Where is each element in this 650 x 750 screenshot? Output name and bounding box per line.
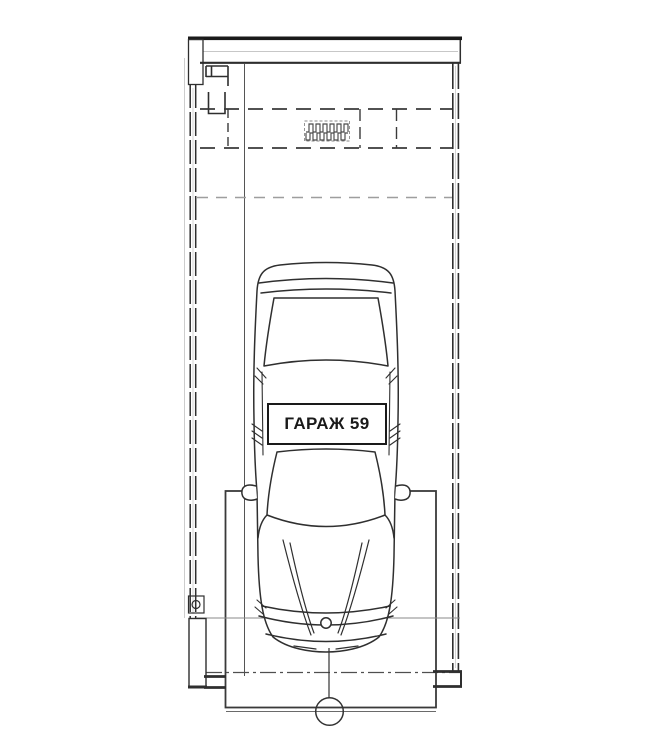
heater-coil-symbol	[305, 121, 350, 141]
car-top-view	[242, 263, 410, 653]
floor-plan-page: ГАРАЖ 59	[0, 0, 650, 750]
car-left-mirror	[242, 485, 257, 500]
car-emblem-circle	[321, 618, 331, 628]
left-step	[204, 677, 226, 688]
axis-marker	[316, 648, 344, 725]
right-step	[433, 672, 462, 687]
floor-plan-drawing	[0, 0, 650, 750]
right-boundary-wall	[453, 63, 459, 671]
top-wall	[188, 37, 462, 64]
garage-label-text: ГАРАЖ 59	[284, 414, 369, 434]
wall-fixture-symbols	[206, 66, 228, 114]
car-right-mirror	[395, 485, 410, 500]
overhead-door-zone	[200, 109, 452, 148]
left-boundary-wall	[190, 84, 196, 618]
garage-label: ГАРАЖ 59	[267, 403, 387, 445]
